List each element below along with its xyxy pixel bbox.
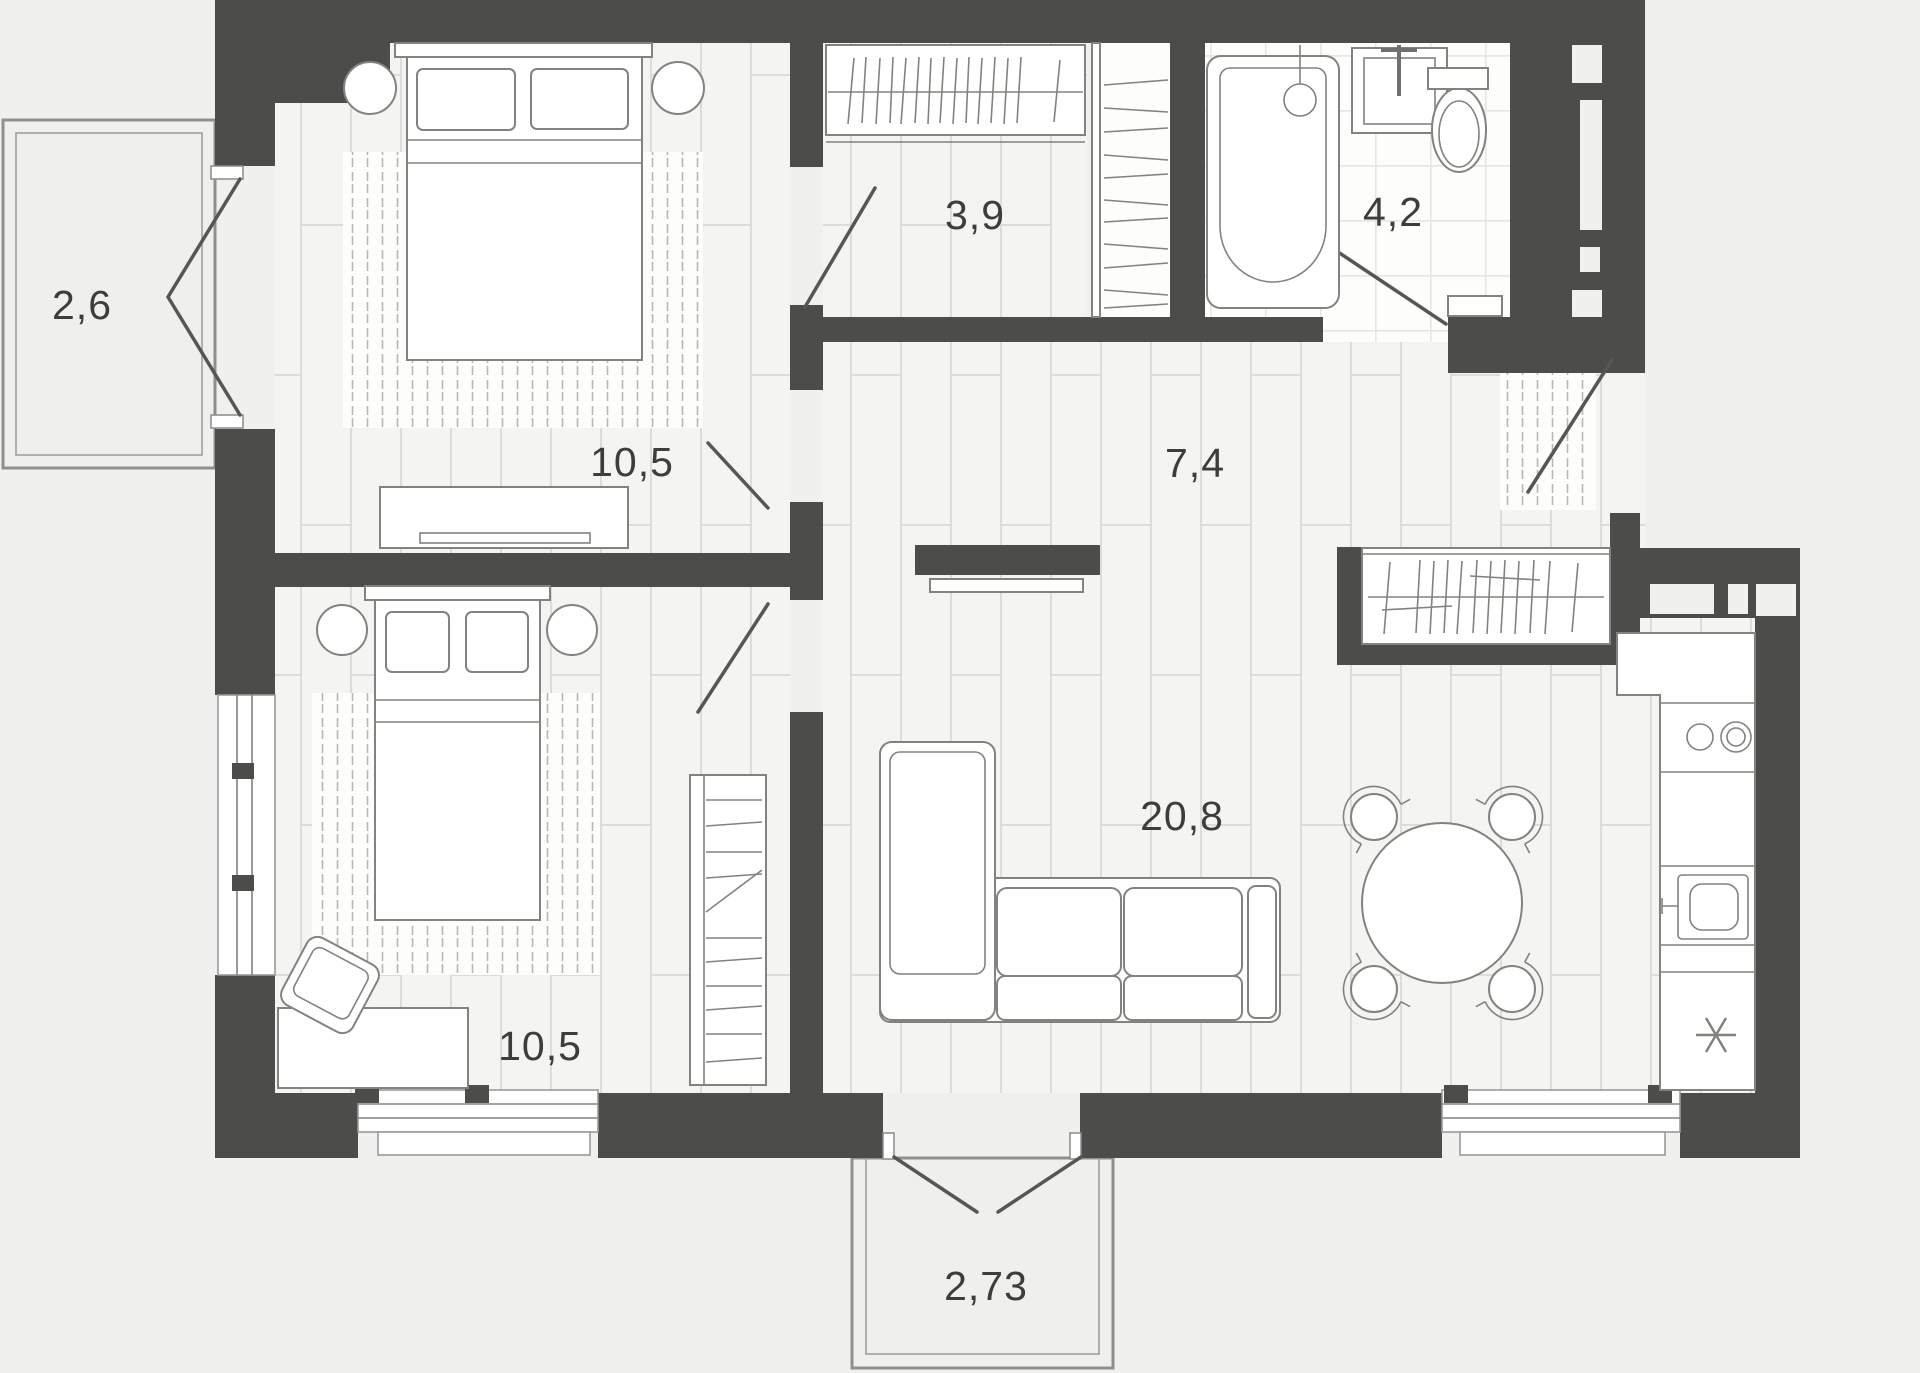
- sofa-armrest: [1248, 886, 1276, 1018]
- room-label-hallway: 7,4: [1165, 440, 1225, 486]
- room-label-wardrobe: 3,9: [945, 192, 1005, 238]
- wall-bathroom-left: [1170, 43, 1205, 342]
- tv-panel: [915, 545, 1100, 575]
- pillow: [531, 69, 628, 129]
- sofa-seat-cushion: [997, 976, 1121, 1020]
- nightstand: [344, 62, 396, 114]
- nightstand: [317, 605, 367, 655]
- bathtub: [1207, 45, 1339, 308]
- shaft-niche: [1728, 584, 1748, 614]
- nightstand: [652, 62, 704, 114]
- sofa-chaise: [880, 742, 995, 1020]
- pillow: [386, 612, 449, 672]
- room-label-living-kitchen: 20,8: [1140, 793, 1224, 839]
- toilet: [1428, 68, 1488, 172]
- shaft-niche: [1572, 290, 1602, 317]
- shaft-niche: [1650, 584, 1714, 614]
- pillow: [466, 612, 528, 672]
- wall-bottom-c: [1080, 1093, 1442, 1158]
- tv-console: [930, 579, 1083, 592]
- wall-top: [215, 0, 1645, 43]
- wall-bathroom-bottom-b: [1448, 317, 1510, 342]
- wall-right: [1755, 618, 1800, 1093]
- room-label-bathroom: 4,2: [1363, 189, 1423, 235]
- pillow: [417, 69, 515, 130]
- wall-wardrobe-bottom: [823, 317, 1205, 342]
- sofa-back-cushion: [1124, 888, 1242, 976]
- shaft-niche: [1580, 247, 1600, 272]
- divider: [1092, 43, 1100, 317]
- wall-bathroom-bottom-a: [1205, 317, 1323, 342]
- wall-interior-v1: [790, 43, 823, 167]
- window-bedroom-2-bottom: [355, 1085, 598, 1155]
- shaft-niche: [1756, 584, 1796, 616]
- sofa-seat-cushion: [1124, 976, 1242, 1020]
- room-label-bedroom-1: 10,5: [590, 439, 674, 485]
- wall-left-a: [215, 0, 275, 166]
- room-label-bedroom-2: 10,5: [498, 1023, 582, 1069]
- window-living-bottom: [1442, 1085, 1680, 1155]
- room-label-balcony-bottom: 2,73: [944, 1263, 1028, 1309]
- bath-shelf: [1448, 296, 1502, 316]
- shelving-unit: [690, 775, 766, 1085]
- wall-between-bedrooms: [275, 553, 790, 587]
- wall-bottom-a: [215, 1093, 358, 1158]
- room-label-balcony-left: 2,6: [52, 282, 112, 328]
- wall-interior-v2: [790, 305, 823, 390]
- sofa-back-cushion: [997, 888, 1121, 976]
- floor-bathroom-threshold: [1323, 317, 1448, 342]
- entry-doormat: [1500, 372, 1596, 510]
- desk: [278, 1008, 468, 1088]
- hall-closet: [1362, 548, 1610, 644]
- nightstand: [547, 605, 597, 655]
- wall-left-b: [215, 429, 275, 695]
- window-bedroom-2-left: [218, 695, 275, 975]
- shaft-niche: [1580, 100, 1602, 230]
- wall-closet-bottom: [1337, 642, 1617, 665]
- floor-plan: 10,5 3,9 4,2 7,4 10,5 20,8 2,6 2,73: [0, 0, 1920, 1373]
- bed-headboard: [395, 43, 652, 57]
- wall-bottom-right-corner: [1680, 1093, 1800, 1158]
- dining-table: [1362, 823, 1522, 983]
- wall-interior-v4: [790, 712, 823, 1093]
- wall-entry-band: [1448, 340, 1645, 373]
- wall-bottom-b: [598, 1093, 883, 1158]
- wall-interior-v3: [790, 502, 823, 600]
- bed-headboard: [365, 586, 550, 600]
- shaft-niche: [1572, 45, 1602, 83]
